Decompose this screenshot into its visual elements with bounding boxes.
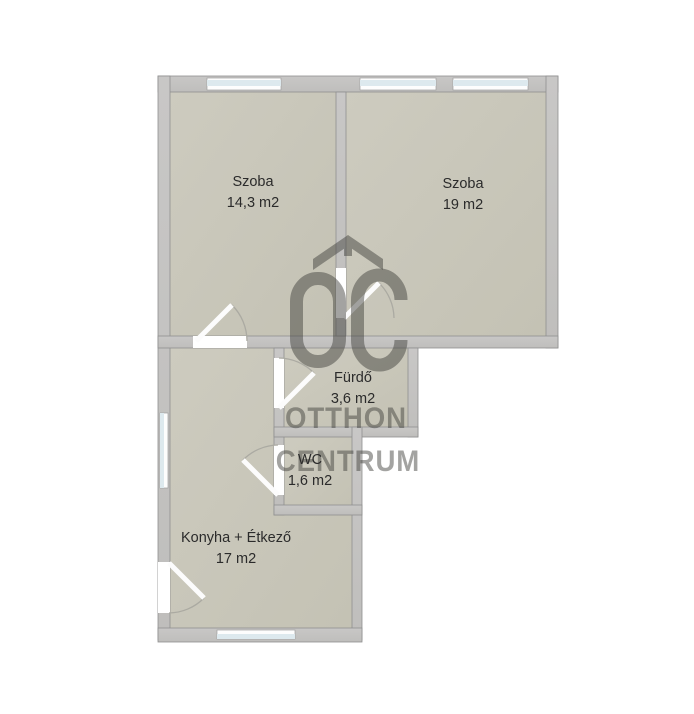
- room-name: Szoba: [442, 174, 483, 195]
- window: [453, 78, 528, 90]
- floor-plan: OTTHON CENTRUM Szoba 14,3 m2 Szoba 19 m2…: [0, 0, 694, 714]
- room-area: 19 m2: [442, 195, 483, 216]
- door-opening-entry: [158, 562, 170, 613]
- floor-szoba-1: [170, 92, 336, 336]
- room-label-furdo: Fürdő 3,6 m2: [331, 368, 375, 410]
- room-area: 17 m2: [181, 549, 291, 570]
- window: [217, 630, 295, 639]
- window: [360, 78, 436, 90]
- door-opening-wc: [274, 445, 284, 495]
- room-name: Fürdő: [331, 368, 375, 389]
- room-area: 1,6 m2: [288, 471, 332, 492]
- room-area: 14,3 m2: [227, 193, 279, 214]
- wall-left: [158, 76, 170, 640]
- wall-furdo-right: [408, 348, 418, 437]
- door-opening-szoba2: [336, 268, 346, 318]
- door-opening-furdo: [274, 358, 284, 408]
- room-label-szoba-1: Szoba 14,3 m2: [227, 172, 279, 214]
- room-label-szoba-2: Szoba 19 m2: [442, 174, 483, 216]
- wall-wc-bottom: [274, 505, 362, 515]
- room-name: WC: [288, 450, 332, 471]
- room-label-wc: WC 1,6 m2: [288, 450, 332, 492]
- room-name: Szoba: [227, 172, 279, 193]
- room-label-konyha-etkezo: Konyha + Étkező 17 m2: [181, 528, 291, 570]
- room-name: Konyha + Étkező: [181, 528, 291, 549]
- wall-right: [546, 76, 558, 348]
- wall-wc-konyha-right: [352, 427, 362, 640]
- wall-furdo-bottom: [274, 427, 418, 437]
- window: [160, 413, 168, 488]
- floor-plan-drawing: [0, 0, 694, 714]
- window: [207, 78, 281, 90]
- room-area: 3,6 m2: [331, 389, 375, 410]
